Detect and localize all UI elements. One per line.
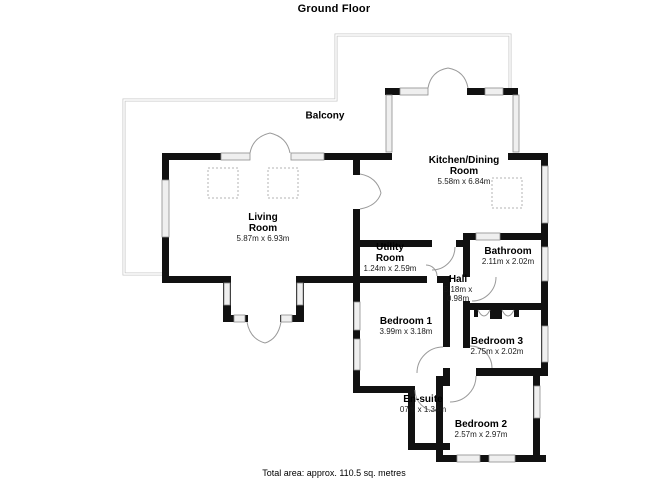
walls <box>162 88 548 462</box>
skylight-squares <box>208 168 522 208</box>
wardrobe <box>474 310 519 319</box>
total-area-note: Total area: approx. 110.5 sq. metres <box>0 468 668 478</box>
door-arcs <box>247 68 496 411</box>
floorplan-page: Ground Floor <box>0 0 668 486</box>
floorplan-canvas <box>0 0 668 486</box>
